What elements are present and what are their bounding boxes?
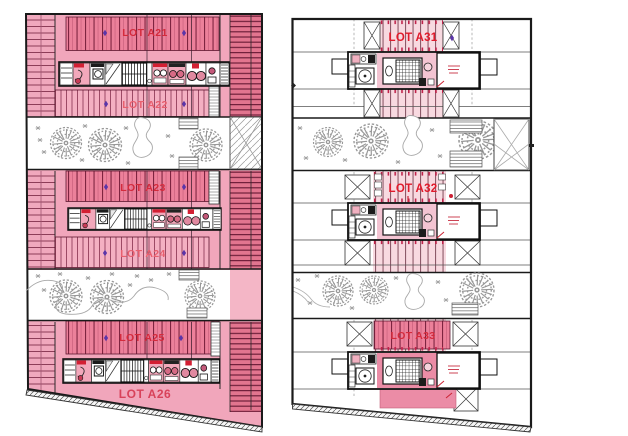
svg-text:LOT A23: LOT A23 (120, 182, 166, 194)
svg-text:LOT A31: LOT A31 (389, 32, 438, 44)
svg-text:LOT A22: LOT A22 (122, 99, 168, 111)
svg-text:LOT A26: LOT A26 (119, 387, 171, 401)
svg-text:LOT A24: LOT A24 (120, 248, 166, 260)
svg-text:LOT A25: LOT A25 (119, 332, 165, 344)
svg-text:LOT A21: LOT A21 (122, 27, 168, 39)
svg-text:LOT A33: LOT A33 (391, 330, 436, 342)
svg-text:LOT A32: LOT A32 (389, 183, 438, 195)
